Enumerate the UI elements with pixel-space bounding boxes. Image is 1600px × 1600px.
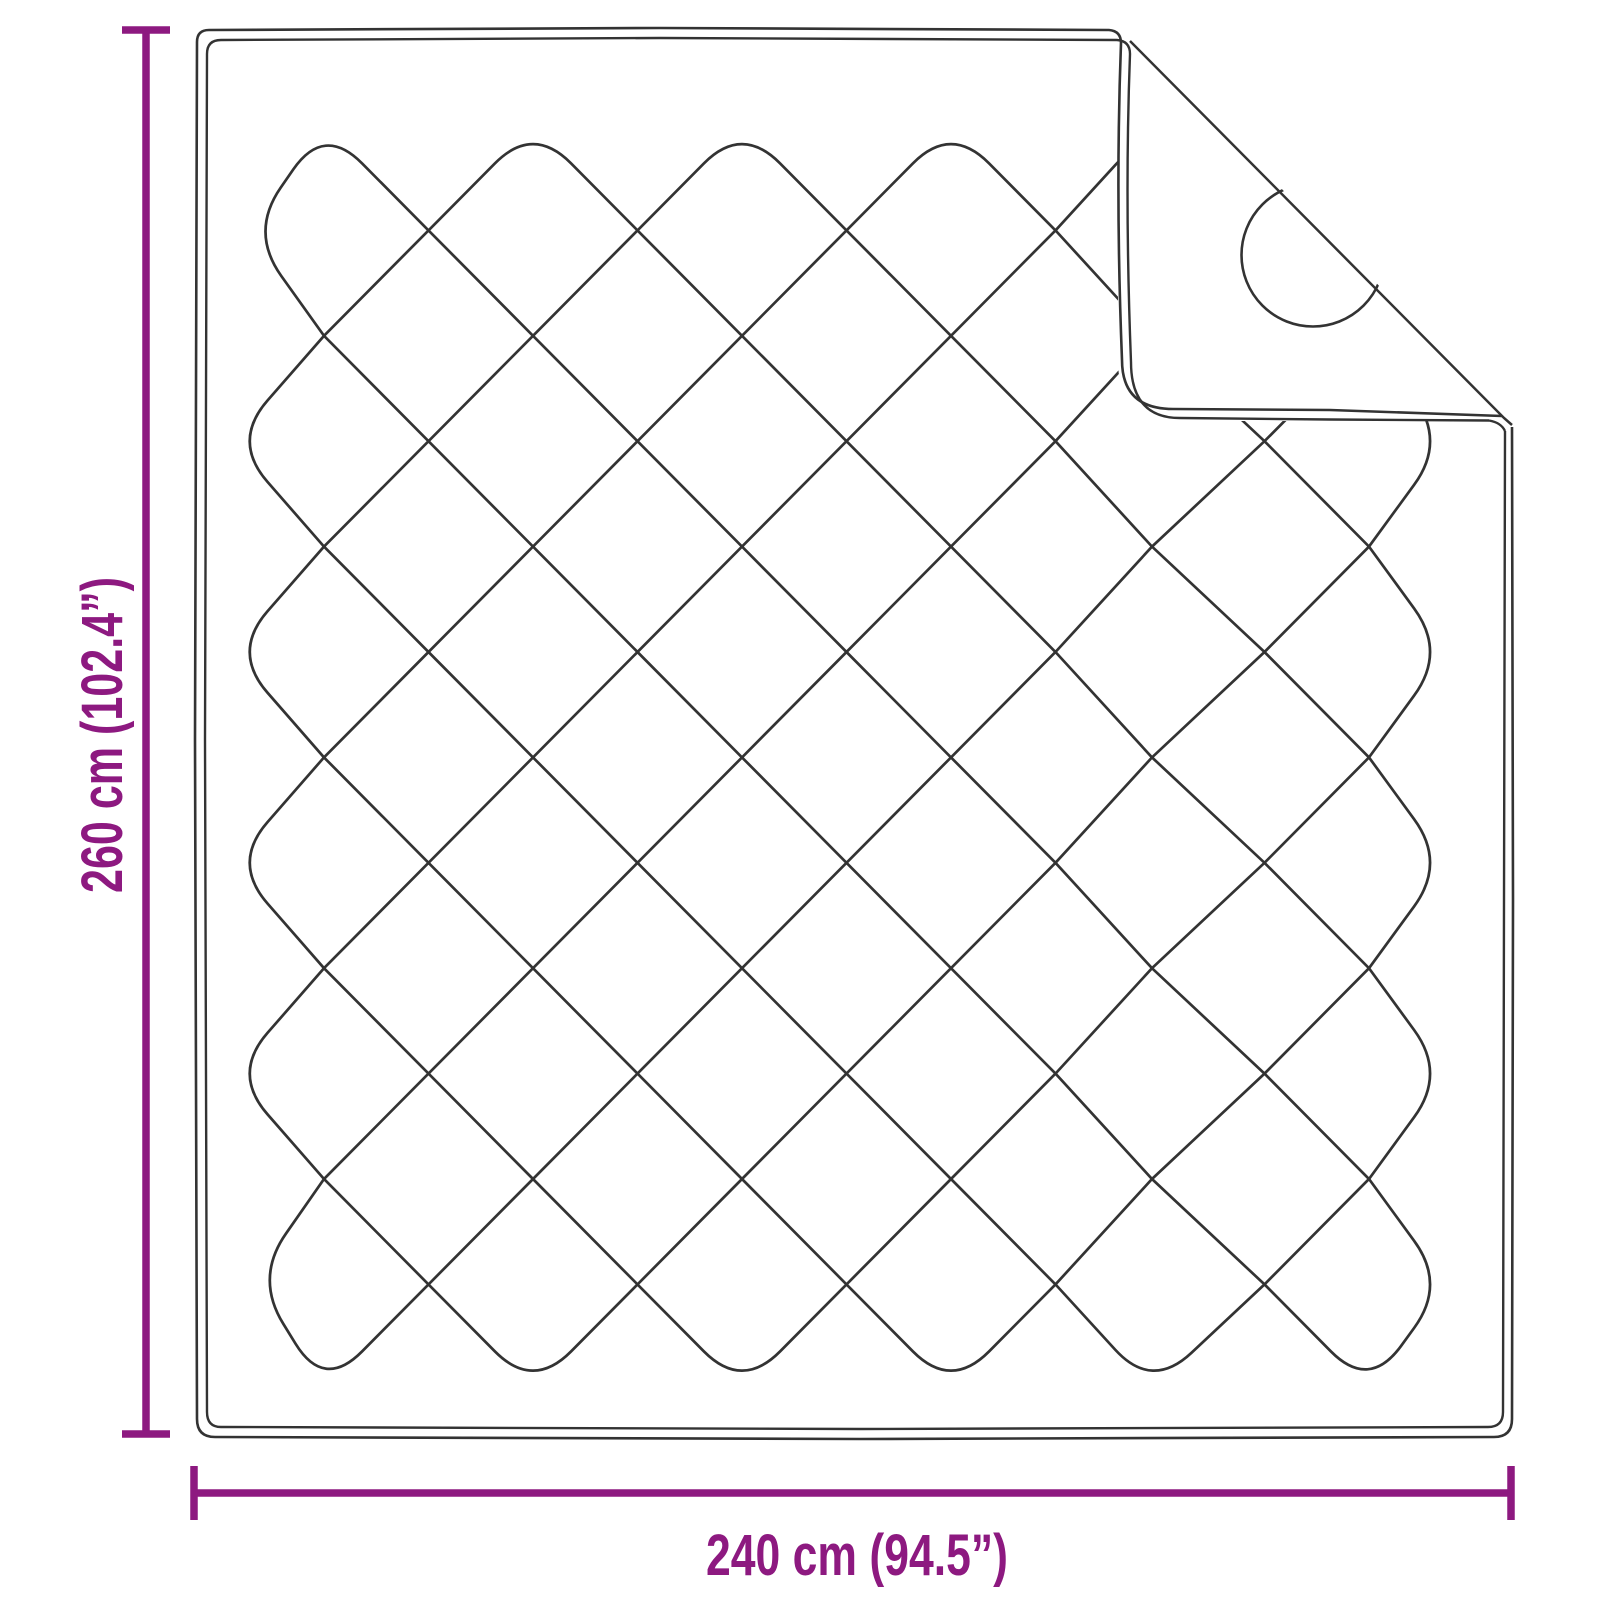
svg-text:240 cm (94.5”): 240 cm (94.5”) xyxy=(706,1523,1008,1588)
svg-text:260 cm (102.4”): 260 cm (102.4”) xyxy=(70,577,135,893)
